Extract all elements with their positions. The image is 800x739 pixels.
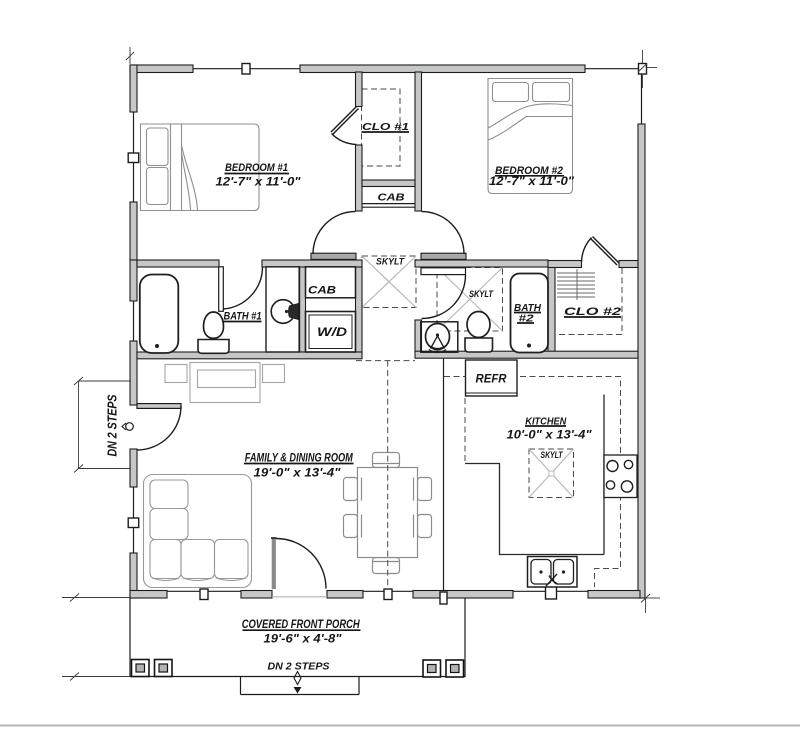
svg-text:COVERED FRONT PORCH: COVERED FRONT PORCH	[242, 619, 361, 631]
svg-text:SKYLT: SKYLT	[469, 289, 494, 299]
svg-text:FAMILY & DINING ROOM: FAMILY & DINING ROOM	[245, 451, 354, 465]
svg-text:12'-7" x 11'-0": 12'-7" x 11'-0"	[489, 174, 574, 188]
svg-text:12'-7" x 11'-0": 12'-7" x 11'-0"	[216, 175, 301, 189]
svg-text:DN 2 STEPS: DN 2 STEPS	[268, 662, 330, 673]
svg-text:19'-0" x 13'-4": 19'-0" x 13'-4"	[254, 468, 342, 480]
svg-text:SKYLT: SKYLT	[376, 257, 405, 267]
svg-text:19'-6" x 4'-8": 19'-6" x 4'-8"	[264, 634, 343, 646]
svg-text:SKYLT: SKYLT	[541, 450, 564, 460]
svg-text:10'-0" x 13'-4": 10'-0" x 13'-4"	[507, 428, 592, 442]
svg-text:BEDROOM #1: BEDROOM #1	[225, 162, 288, 174]
svg-text:CAB: CAB	[378, 192, 405, 204]
svg-text:W/D: W/D	[317, 327, 347, 339]
svg-text:REFR: REFR	[476, 372, 507, 386]
svg-text:DN 2 STEPS: DN 2 STEPS	[106, 394, 120, 457]
svg-text:CAB: CAB	[308, 285, 336, 297]
